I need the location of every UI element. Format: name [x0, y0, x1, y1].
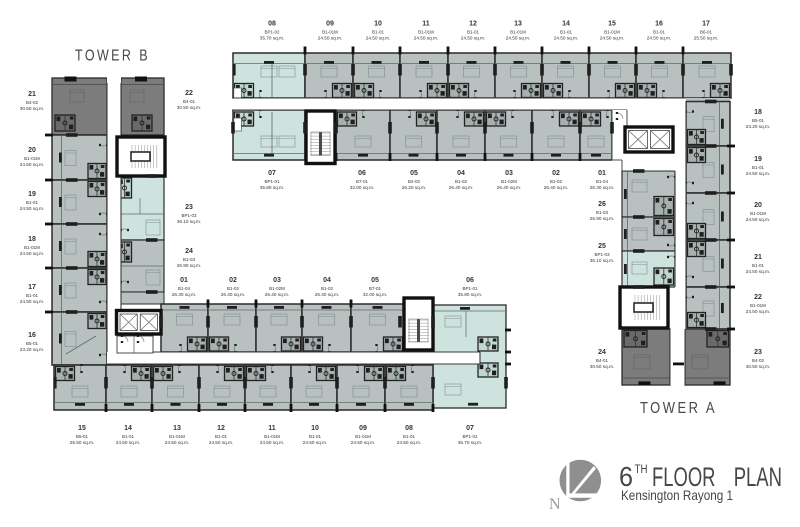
svg-text:24.50 sq.m.: 24.50 sq.m.: [165, 440, 190, 445]
svg-text:35.70 sq.m.: 35.70 sq.m.: [260, 36, 285, 41]
svg-text:TOWER B: TOWER B: [75, 48, 150, 65]
svg-text:07: 07: [268, 170, 276, 177]
svg-text:35.80 sq.m.: 35.80 sq.m.: [458, 292, 483, 297]
svg-text:22: 22: [754, 294, 762, 301]
svg-text:09: 09: [326, 21, 334, 28]
svg-text:35.70 sq.m.: 35.70 sq.m.: [458, 440, 483, 445]
svg-text:24.50 sq.m.: 24.50 sq.m.: [20, 162, 45, 167]
svg-text:14: 14: [124, 425, 132, 432]
svg-text:B5-01: B5-01: [752, 118, 765, 123]
svg-text:B7-01: B7-01: [356, 179, 369, 184]
svg-text:24.50 sq.m.: 24.50 sq.m.: [318, 36, 343, 41]
svg-text:01: 01: [598, 170, 606, 177]
svg-text:10: 10: [311, 425, 319, 432]
svg-text:18: 18: [754, 109, 762, 116]
svg-text:17: 17: [28, 284, 36, 291]
svg-text:BP1-03: BP1-03: [181, 213, 197, 218]
svg-text:24.50 sq.m.: 24.50 sq.m.: [506, 36, 531, 41]
svg-text:B1-01: B1-01: [215, 434, 228, 439]
svg-text:B1-02M: B1-02M: [269, 286, 285, 291]
svg-text:24.50 sq.m.: 24.50 sq.m.: [397, 440, 422, 445]
svg-text:01: 01: [180, 277, 188, 284]
svg-text:TOWER A: TOWER A: [640, 400, 717, 417]
svg-text:02: 02: [229, 277, 237, 284]
svg-text:23: 23: [754, 349, 762, 356]
svg-text:26.30 sq.m.: 26.30 sq.m.: [172, 292, 197, 297]
svg-text:13: 13: [173, 425, 181, 432]
svg-text:36.10 sq.m.: 36.10 sq.m.: [590, 258, 615, 263]
svg-text:12: 12: [217, 425, 225, 432]
svg-text:B4-01: B4-01: [183, 99, 196, 104]
svg-text:04: 04: [457, 170, 465, 177]
svg-text:32.00 sq.m.: 32.00 sq.m.: [363, 292, 388, 297]
svg-text:36.10 sq.m.: 36.10 sq.m.: [177, 219, 202, 224]
svg-text:26.40 sq.m.: 26.40 sq.m.: [544, 185, 569, 190]
svg-text:24: 24: [598, 349, 606, 356]
svg-text:B1-01M: B1-01M: [355, 434, 371, 439]
svg-text:B1-01: B1-01: [403, 434, 416, 439]
svg-text:09: 09: [359, 425, 367, 432]
svg-text:13: 13: [514, 21, 522, 28]
svg-text:B1-01M: B1-01M: [169, 434, 185, 439]
svg-text:20: 20: [28, 147, 36, 154]
svg-text:24.50 sq.m.: 24.50 sq.m.: [351, 440, 376, 445]
svg-text:B1-01: B1-01: [752, 165, 765, 170]
svg-text:B1-01M: B1-01M: [510, 29, 526, 34]
svg-text:24.50 sq.m.: 24.50 sq.m.: [554, 36, 579, 41]
svg-text:21: 21: [28, 91, 36, 98]
svg-text:24.50 sq.m.: 24.50 sq.m.: [746, 171, 771, 176]
svg-text:B1-01: B1-01: [467, 29, 480, 34]
svg-text:25.50 sq.m.: 25.50 sq.m.: [694, 36, 719, 41]
svg-text:26.40 sq.m.: 26.40 sq.m.: [221, 292, 246, 297]
svg-text:24.50 sq.m.: 24.50 sq.m.: [647, 36, 672, 41]
svg-text:B1-01M: B1-01M: [604, 29, 620, 34]
svg-text:B1-01M: B1-01M: [322, 29, 338, 34]
svg-text:24: 24: [185, 248, 193, 255]
svg-text:03: 03: [505, 170, 513, 177]
svg-text:BP1-01: BP1-01: [264, 179, 280, 184]
svg-text:B4-01: B4-01: [596, 358, 609, 363]
svg-text:B1-01: B1-01: [653, 29, 666, 34]
svg-text:23.20 sq.m.: 23.20 sq.m.: [746, 124, 771, 129]
svg-text:24.50 sq.m.: 24.50 sq.m.: [20, 299, 45, 304]
svg-text:08: 08: [405, 425, 413, 432]
svg-text:24.50 sq.m.: 24.50 sq.m.: [414, 36, 439, 41]
svg-text:24.50 sq.m.: 24.50 sq.m.: [461, 36, 486, 41]
svg-text:26.40 sq.m.: 26.40 sq.m.: [265, 292, 290, 297]
svg-text:B6-01: B6-01: [700, 29, 713, 34]
svg-text:26.30 sq.m.: 26.30 sq.m.: [590, 185, 615, 190]
svg-text:05: 05: [371, 277, 379, 284]
svg-text:16: 16: [28, 332, 36, 339]
svg-text:32.00 sq.m.: 32.00 sq.m.: [350, 185, 375, 190]
svg-text:03: 03: [273, 277, 281, 284]
svg-text:B1-02: B1-02: [227, 286, 240, 291]
svg-text:B1-01M: B1-01M: [264, 434, 280, 439]
svg-text:B1-01M: B1-01M: [750, 211, 766, 216]
svg-text:N: N: [549, 496, 561, 513]
svg-text:18: 18: [28, 236, 36, 243]
svg-text:B1-01: B1-01: [26, 200, 39, 205]
svg-text:19: 19: [28, 191, 36, 198]
svg-text:B1-02: B1-02: [455, 179, 468, 184]
svg-text:16: 16: [655, 21, 663, 28]
svg-text:B1-01: B1-01: [372, 29, 385, 34]
svg-text:17: 17: [702, 21, 710, 28]
svg-text:25: 25: [598, 243, 606, 250]
svg-text:24.50 sq.m.: 24.50 sq.m.: [746, 309, 771, 314]
svg-text:Kensington Rayong 1: Kensington Rayong 1: [621, 487, 733, 503]
svg-text:26.40 sq.m.: 26.40 sq.m.: [449, 185, 474, 190]
svg-text:B1-02: B1-02: [321, 286, 334, 291]
svg-text:BP1-01: BP1-01: [462, 286, 478, 291]
svg-text:20: 20: [754, 202, 762, 209]
svg-text:15: 15: [608, 21, 616, 28]
svg-text:26.90 sq.m.: 26.90 sq.m.: [590, 216, 615, 221]
svg-text:B1-03: B1-03: [596, 210, 609, 215]
svg-text:B1-02: B1-02: [550, 179, 563, 184]
svg-text:23.20 sq.m.: 23.20 sq.m.: [20, 347, 45, 352]
svg-text:B1-02M: B1-02M: [501, 179, 517, 184]
svg-text:04: 04: [323, 277, 331, 284]
svg-text:14: 14: [562, 21, 570, 28]
svg-text:24.50 sq.m.: 24.50 sq.m.: [20, 206, 45, 211]
svg-text:B1-01M: B1-01M: [24, 156, 40, 161]
svg-text:19: 19: [754, 156, 762, 163]
svg-text:B4-02: B4-02: [752, 358, 765, 363]
svg-text:06: 06: [358, 170, 366, 177]
svg-text:24.50 sq.m.: 24.50 sq.m.: [746, 217, 771, 222]
svg-text:08: 08: [268, 21, 276, 28]
svg-text:26.40 sq.m.: 26.40 sq.m.: [315, 292, 340, 297]
svg-text:B2-02: B2-02: [408, 179, 421, 184]
svg-text:07: 07: [466, 425, 474, 432]
svg-text:B1-04: B1-04: [178, 286, 191, 291]
svg-text:30.50 sq.m.: 30.50 sq.m.: [746, 364, 771, 369]
svg-text:21: 21: [754, 254, 762, 261]
svg-text:11: 11: [422, 21, 430, 28]
svg-text:23: 23: [185, 204, 193, 211]
svg-text:B1-01: B1-01: [752, 263, 765, 268]
svg-text:B1-04: B1-04: [596, 179, 609, 184]
svg-text:15: 15: [78, 425, 86, 432]
svg-text:24.50 sq.m.: 24.50 sq.m.: [600, 36, 625, 41]
svg-text:26.20 sq.m.: 26.20 sq.m.: [402, 185, 427, 190]
svg-text:TH: TH: [635, 464, 648, 476]
svg-text:30.50 sq.m.: 30.50 sq.m.: [590, 364, 615, 369]
svg-text:05: 05: [410, 170, 418, 177]
svg-text:BP1-02: BP1-02: [462, 434, 478, 439]
svg-text:10: 10: [374, 21, 382, 28]
svg-text:35.80 sq.m.: 35.80 sq.m.: [260, 185, 285, 190]
svg-text:25.50 sq.m.: 25.50 sq.m.: [70, 440, 95, 445]
svg-text:24.50 sq.m.: 24.50 sq.m.: [116, 440, 141, 445]
svg-text:26.40 sq.m.: 26.40 sq.m.: [497, 185, 522, 190]
svg-text:24.50 sq.m.: 24.50 sq.m.: [20, 251, 45, 256]
svg-text:B1-01: B1-01: [560, 29, 573, 34]
svg-text:22: 22: [185, 90, 193, 97]
svg-text:B1-01: B1-01: [26, 293, 39, 298]
svg-text:BP1-03: BP1-03: [594, 252, 610, 257]
svg-text:06: 06: [466, 277, 474, 284]
svg-text:PLAN: PLAN: [734, 462, 782, 492]
svg-text:02: 02: [552, 170, 560, 177]
svg-text:B1-01M: B1-01M: [750, 303, 766, 308]
svg-text:B6-01: B6-01: [76, 434, 89, 439]
svg-text:BP1-02: BP1-02: [264, 29, 280, 34]
svg-text:30.50 sq.m.: 30.50 sq.m.: [20, 106, 45, 111]
svg-text:26.90 sq.m.: 26.90 sq.m.: [177, 263, 202, 268]
svg-text:12: 12: [469, 21, 477, 28]
svg-text:B1-01M: B1-01M: [418, 29, 434, 34]
svg-text:24.50 sq.m.: 24.50 sq.m.: [260, 440, 285, 445]
svg-text:11: 11: [268, 425, 276, 432]
svg-text:24.50 sq.m.: 24.50 sq.m.: [303, 440, 328, 445]
svg-text:26: 26: [598, 201, 606, 208]
svg-text:B4-02: B4-02: [26, 100, 39, 105]
svg-text:30.50 sq.m.: 30.50 sq.m.: [177, 105, 202, 110]
svg-text:B7-01: B7-01: [369, 286, 382, 291]
svg-text:B1-01M: B1-01M: [24, 245, 40, 250]
svg-text:24.50 sq.m.: 24.50 sq.m.: [746, 269, 771, 274]
svg-text:B5-01: B5-01: [26, 341, 39, 346]
svg-text:B1-01: B1-01: [122, 434, 135, 439]
svg-text:24.50 sq.m.: 24.50 sq.m.: [366, 36, 391, 41]
svg-text:B1-01: B1-01: [309, 434, 322, 439]
svg-text:24.50 sq.m.: 24.50 sq.m.: [209, 440, 234, 445]
svg-text:B1-03: B1-03: [183, 257, 196, 262]
